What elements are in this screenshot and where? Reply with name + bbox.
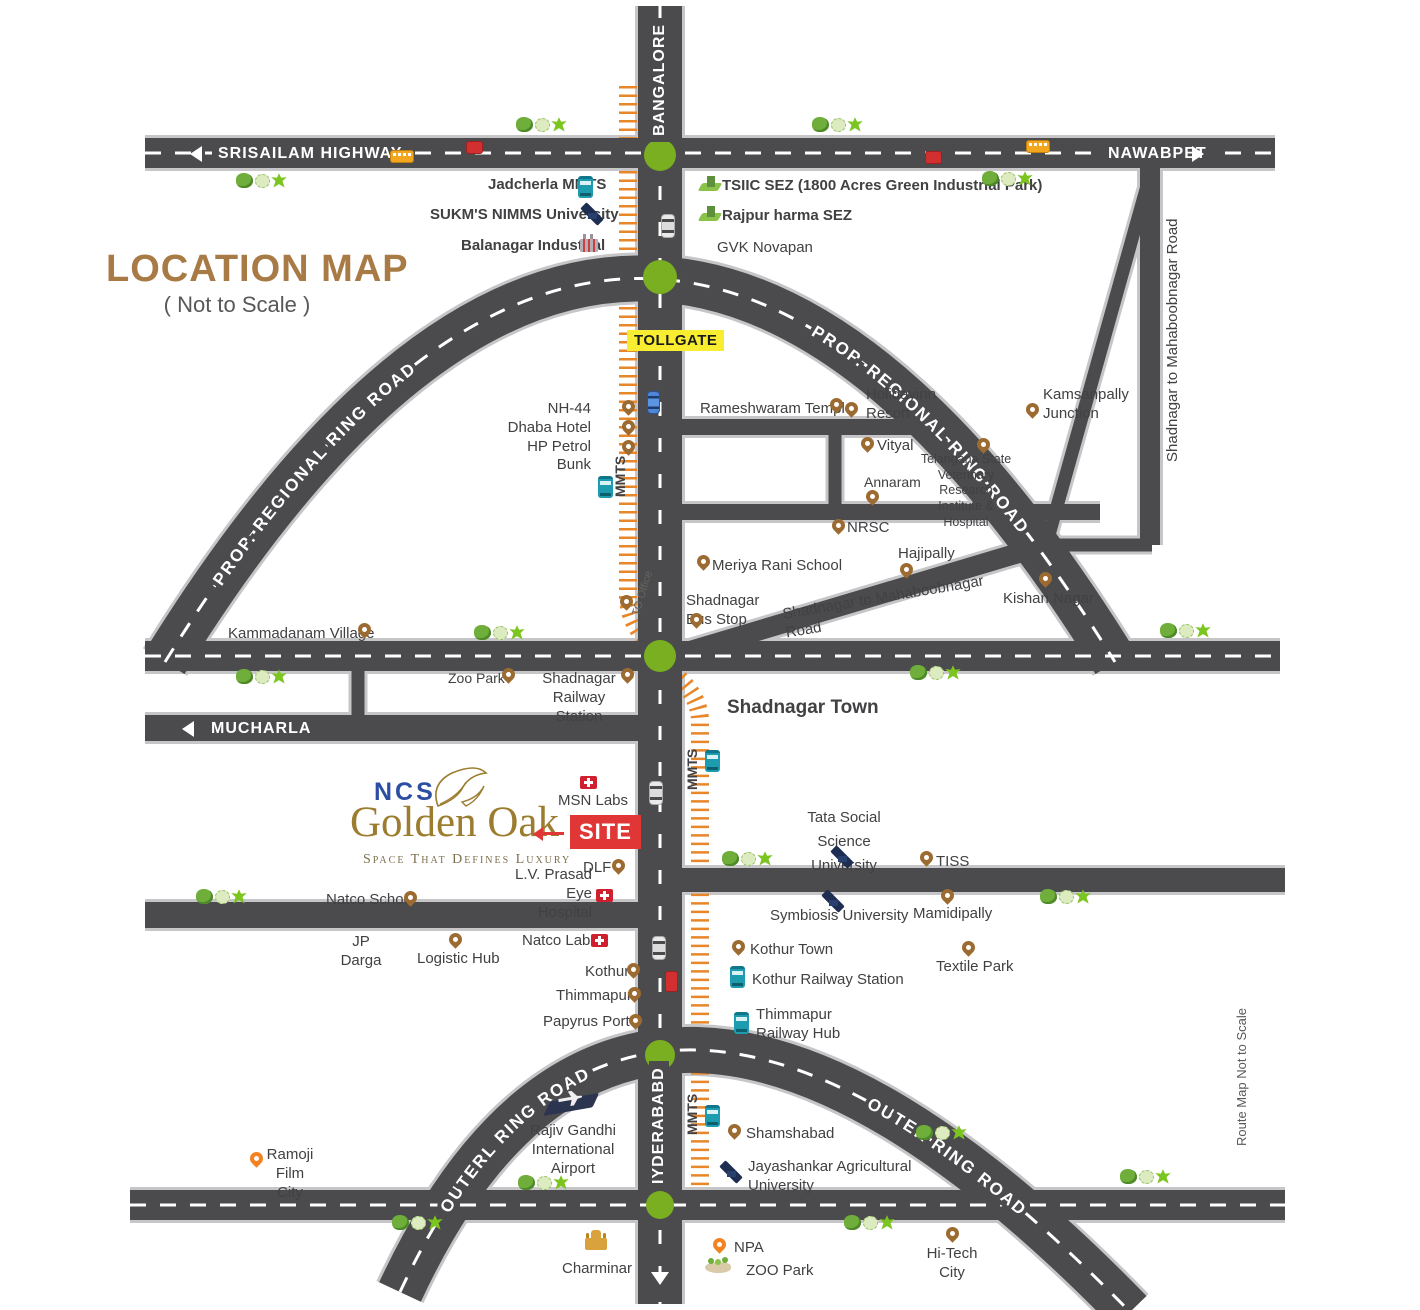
east-arrow-icon <box>1192 146 1204 162</box>
mucharla-arrow-icon <box>182 721 194 737</box>
label-kammadanam-village: Kammadanam Village <box>228 625 374 644</box>
tree-cluster-icon <box>236 668 290 688</box>
bus-icon <box>390 150 414 163</box>
label-nh44-dhaba-hp: NH-44 Dhaba Hotel HP Petrol Bunk <box>496 400 591 475</box>
tree-icon <box>935 1126 950 1140</box>
tree-icon <box>982 171 999 186</box>
tree-icon <box>1120 1169 1137 1184</box>
tree-icon <box>493 626 508 640</box>
tree-icon <box>879 1215 895 1230</box>
tree-icon <box>518 1175 535 1190</box>
tree-icon <box>1040 889 1057 904</box>
label-jp-darga: JP Darga <box>340 933 382 971</box>
tree-icon <box>551 117 567 132</box>
truck-icon <box>665 971 678 992</box>
label-kothur-railway-station: Kothur Railway Station <box>752 971 904 990</box>
mmts-label-2: MMTS <box>684 749 702 790</box>
label-logistic-hub: Logistic Hub <box>417 950 500 969</box>
road-label-hyderabad: IYDERABABD <box>649 1061 669 1190</box>
industrial-park-icon <box>698 206 720 221</box>
tree-icon <box>231 889 247 904</box>
tree-icon <box>722 851 739 866</box>
brand-project-name: Golden Oak <box>350 798 559 847</box>
charminar-icon <box>585 1238 607 1250</box>
graduation-cap-icon <box>821 892 845 908</box>
label-kothur: Kothur <box>585 963 629 982</box>
tollgate-badge: TOLLGATE <box>627 330 724 351</box>
tree-cluster-icon <box>844 1214 898 1234</box>
tree-cluster-icon <box>518 1174 572 1194</box>
label-shamshabad: Shamshabad <box>746 1125 834 1144</box>
label-textile-park: Textile Park <box>936 958 1014 977</box>
location-map: PROP. REGIONAL RING ROAD PROP. REGIONAL … <box>0 0 1420 1310</box>
tree-cluster-icon <box>910 664 964 684</box>
label-natco-labs: Natco Labs <box>522 932 598 951</box>
tree-icon <box>951 1125 967 1140</box>
truck-icon <box>925 151 942 164</box>
road-label-shad-mahab-vertical: Shadnagar to Mahaboobnagar Road <box>1164 218 1183 462</box>
label-kishan-nagar: Kishan Nagar <box>1003 590 1094 609</box>
tree-icon <box>757 851 773 866</box>
label-ramoji-film-city: Ramoji Film City <box>262 1146 318 1202</box>
tree-icon <box>196 889 213 904</box>
tree-icon <box>812 117 829 132</box>
truck-icon <box>466 141 483 154</box>
label-hajipally: Hajipally <box>898 545 955 564</box>
tree-icon <box>411 1216 426 1230</box>
west-arrow-icon <box>190 146 202 162</box>
tree-icon <box>392 1215 409 1230</box>
medical-cross-icon <box>596 889 613 902</box>
tree-cluster-icon <box>812 116 866 136</box>
tree-cluster-icon <box>392 1214 446 1234</box>
train-icon <box>734 1012 749 1034</box>
tree-icon <box>1001 172 1016 186</box>
page-title: LOCATION MAP <box>106 248 409 291</box>
mmts-label-3: MMTS <box>684 1094 702 1135</box>
south-arrow-icon <box>651 1272 669 1285</box>
label-shadnagar-town: Shadnagar Town <box>727 696 879 720</box>
tree-icon <box>929 666 944 680</box>
label-jayashankar-university: Jayashankar Agricultural University <box>748 1158 911 1196</box>
tree-icon <box>255 670 270 684</box>
car-icon <box>649 781 663 805</box>
label-npa: NPA <box>734 1239 764 1258</box>
label-vityal: Vityal <box>877 437 913 456</box>
tree-icon <box>945 665 961 680</box>
tree-icon <box>553 1175 569 1190</box>
zoo-icon <box>705 1262 731 1273</box>
tree-icon <box>1059 890 1074 904</box>
medical-cross-icon <box>580 776 597 789</box>
tree-cluster-icon <box>916 1124 970 1144</box>
bus-icon <box>1026 140 1050 153</box>
tree-icon <box>910 665 927 680</box>
tree-icon <box>847 117 863 132</box>
graduation-cap-icon <box>719 1163 743 1179</box>
industrial-park-icon <box>698 176 720 191</box>
train-icon <box>705 1105 720 1127</box>
tree-icon <box>271 669 287 684</box>
label-shadnagar-railway-station: Shadnagar Railway Station <box>535 670 623 726</box>
road-label-mucharla: MUCHARLA <box>205 719 317 739</box>
tree-icon <box>271 173 287 188</box>
label-hitech-city: Hi-Tech City <box>924 1245 980 1283</box>
tree-icon <box>215 890 230 904</box>
label-lv-prasad: L.V. Prasad Eye Hospital <box>510 866 592 922</box>
medical-cross-icon <box>591 934 608 947</box>
label-telangana-veterinary: Telangana State Veterinary Research Inst… <box>915 452 1017 530</box>
label-natco-school: Natco School <box>326 891 415 910</box>
tree-icon <box>535 118 550 132</box>
train-icon <box>705 750 720 772</box>
tree-icon <box>474 625 491 640</box>
tree-icon <box>1017 171 1033 186</box>
tree-icon <box>1139 1170 1154 1184</box>
train-icon <box>730 966 745 988</box>
tree-icon <box>916 1125 933 1140</box>
tree-icon <box>741 852 756 866</box>
graduation-cap-icon <box>580 205 604 221</box>
tree-icon <box>537 1176 552 1190</box>
tree-cluster-icon <box>196 888 250 908</box>
tree-icon <box>236 173 253 188</box>
train-icon <box>598 476 613 498</box>
label-holidayinn-resort: Holidayinn Resort <box>866 386 936 424</box>
tree-cluster-icon <box>474 624 528 644</box>
label-thimmapur: Thimmapur <box>556 987 632 1006</box>
page-subtitle: ( Not to Scale ) <box>106 292 368 318</box>
label-kothur-town: Kothur Town <box>750 941 833 960</box>
label-papyrus-port: Papyrus Port <box>543 1013 630 1032</box>
label-charminar: Charminar <box>562 1260 632 1279</box>
tree-cluster-icon <box>1120 1168 1174 1188</box>
label-nrsc: NRSC <box>847 519 890 538</box>
tree-icon <box>831 118 846 132</box>
road-label-srisailam: SRISAILAM HIGHWAY <box>212 144 408 164</box>
route-note: Route Map Not to Scale <box>1234 1008 1250 1146</box>
label-msn-labs: MSN Labs <box>558 792 628 811</box>
tree-icon <box>1179 624 1194 638</box>
label-meriya-rani-school: Meriya Rani School <box>712 557 842 576</box>
tree-icon <box>1155 1169 1171 1184</box>
road-label-bangalore: BANGALORE <box>650 18 670 142</box>
mmts-label-1: MMTS <box>612 456 630 497</box>
label-gvk-novapan: GVK Novapan <box>717 239 813 258</box>
label-thimmapur-railway-hub: Thimmapur Railway Hub <box>756 1006 840 1044</box>
tree-cluster-icon <box>982 170 1036 190</box>
site-badge: SITE <box>570 815 641 849</box>
label-rajiv-gandhi-airport: Rajiv Gandhi International Airport <box>508 1122 638 1178</box>
label-rajpur-sez: Rajpur harma SEZ <box>722 207 852 226</box>
train-icon <box>578 176 593 198</box>
tree-icon <box>844 1215 861 1230</box>
tree-icon <box>255 174 270 188</box>
label-zoo-park: Zoo Park <box>448 670 505 688</box>
tree-icon <box>516 117 533 132</box>
tree-icon <box>1160 623 1177 638</box>
label-zoo-park-2: ZOO Park <box>746 1262 814 1281</box>
tree-cluster-icon <box>1160 622 1214 642</box>
tree-icon <box>427 1215 443 1230</box>
car-icon <box>647 391 660 414</box>
tree-cluster-icon <box>236 172 290 192</box>
tree-icon <box>509 625 525 640</box>
factory-icon <box>580 239 598 252</box>
tree-icon <box>1195 623 1211 638</box>
label-kamsanpally-junction: Kamsanpally Junction <box>1043 386 1129 424</box>
label-tata-social: Tata Social Science University <box>788 806 900 878</box>
tree-icon <box>863 1216 878 1230</box>
graduation-cap-icon <box>830 848 854 864</box>
car-icon <box>652 936 666 960</box>
label-mamidipally: Mamidipally <box>913 905 992 924</box>
tree-icon <box>1075 889 1091 904</box>
tree-cluster-icon <box>516 116 570 136</box>
tree-icon <box>236 669 253 684</box>
car-icon <box>661 214 675 238</box>
site-arrow-icon <box>542 832 564 835</box>
tree-cluster-icon <box>1040 888 1094 908</box>
tree-cluster-icon <box>722 850 776 870</box>
label-tiss: TISS <box>936 853 969 872</box>
